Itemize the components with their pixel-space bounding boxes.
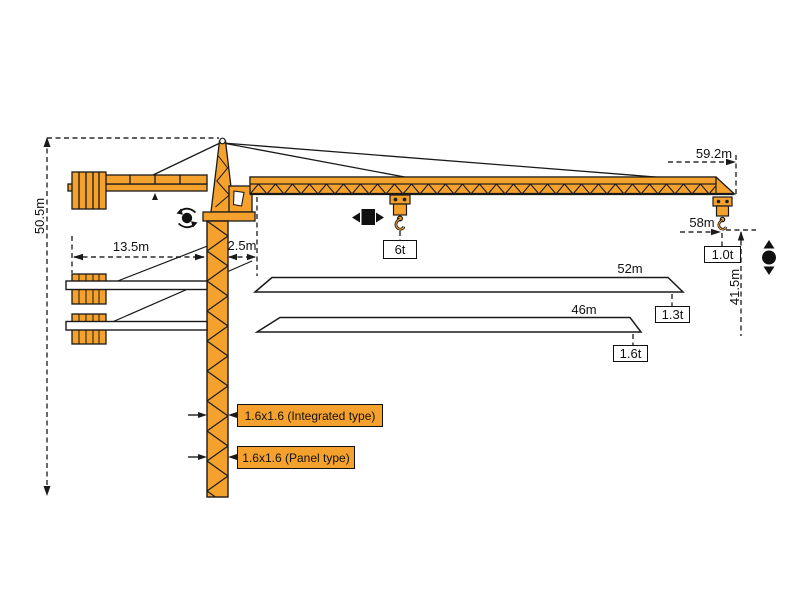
tower-mast (207, 221, 228, 497)
jib-root-offset-label: 2.5m (217, 239, 267, 253)
counterweight-option-a (66, 274, 207, 304)
crane-load-diagram: 50.5m 13.5m 2.5m 59.2m 58m 41.5m 52m 46m… (0, 0, 800, 600)
max-radius-label: 59.2m (684, 147, 744, 161)
jib-52m-bar (255, 278, 683, 293)
tip-load-box: 1.0t (704, 246, 741, 263)
jib-52-length-label: 52m (605, 262, 655, 276)
total-height-label: 50.5m (33, 193, 47, 239)
trolley-travel-icon (352, 209, 384, 225)
max-load-box: 6t (383, 240, 417, 259)
mast-panel-label: 1.6x1.6 (Panel type) (237, 446, 355, 469)
counterweight-block (72, 172, 106, 209)
crane-drawing (0, 0, 800, 600)
main-jib (250, 177, 735, 194)
tail-radius-label: 13.5m (101, 240, 161, 254)
tie-bars (153, 143, 694, 180)
apex-pin (220, 138, 226, 144)
hoisting-icon (762, 240, 776, 275)
max-hook-radius-label: 58m (677, 216, 727, 230)
mast-integrated-label: 1.6x1.6 (Integrated type) (237, 404, 383, 427)
jib-52-tip-load-box: 1.3t (655, 306, 690, 323)
jib-46-length-label: 46m (559, 303, 609, 317)
jib-46m-bar (257, 318, 641, 333)
jib-46-tip-load-box: 1.6t (613, 345, 648, 362)
jib-option-bars (255, 278, 683, 333)
counterweight-option-b (66, 314, 207, 344)
slewing-platform (203, 212, 255, 221)
tie-attach-arrow (152, 193, 158, 200)
trolley-hook-mid (390, 195, 410, 229)
hook-height-label: 41.5m (728, 264, 742, 310)
cab-window (234, 191, 245, 206)
operator-cab (229, 186, 252, 212)
rotation-icon (177, 209, 198, 228)
